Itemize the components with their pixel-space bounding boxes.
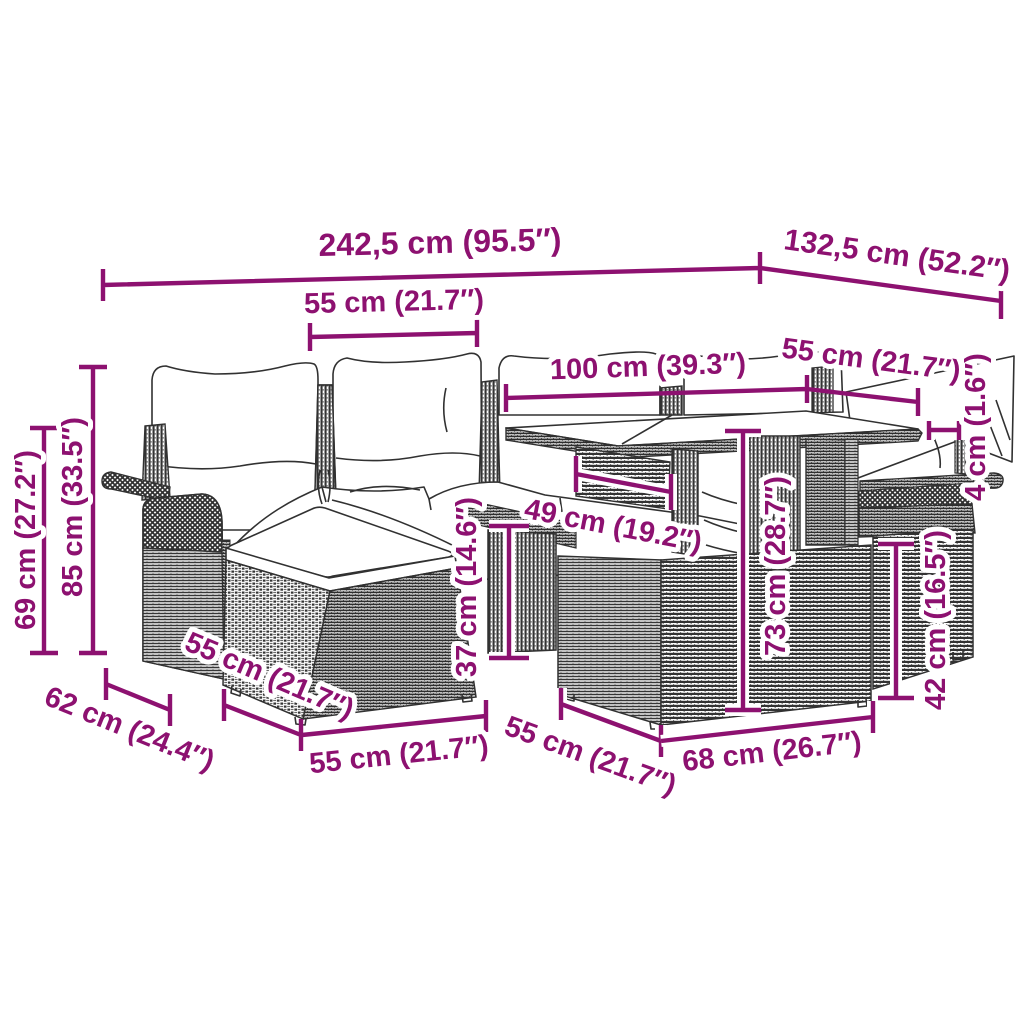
svg-text:55 cm (21.7″): 55 cm (21.7″) <box>304 284 485 320</box>
svg-text:37 cm (14.6″): 37 cm (14.6″) <box>451 497 483 677</box>
svg-text:100 cm (39.3″): 100 cm (39.3″) <box>549 348 746 387</box>
svg-text:42 cm (16.5″): 42 cm (16.5″) <box>920 530 952 710</box>
svg-text:242,5 cm (95.5″): 242,5 cm (95.5″) <box>318 221 562 263</box>
svg-text:4 cm (1.6″): 4 cm (1.6″) <box>960 353 992 501</box>
svg-text:85 cm (33.5″): 85 cm (33.5″) <box>57 417 89 597</box>
svg-text:69 cm (27.2″): 69 cm (27.2″) <box>10 450 42 630</box>
svg-text:73 cm (28.7″): 73 cm (28.7″) <box>760 476 792 656</box>
